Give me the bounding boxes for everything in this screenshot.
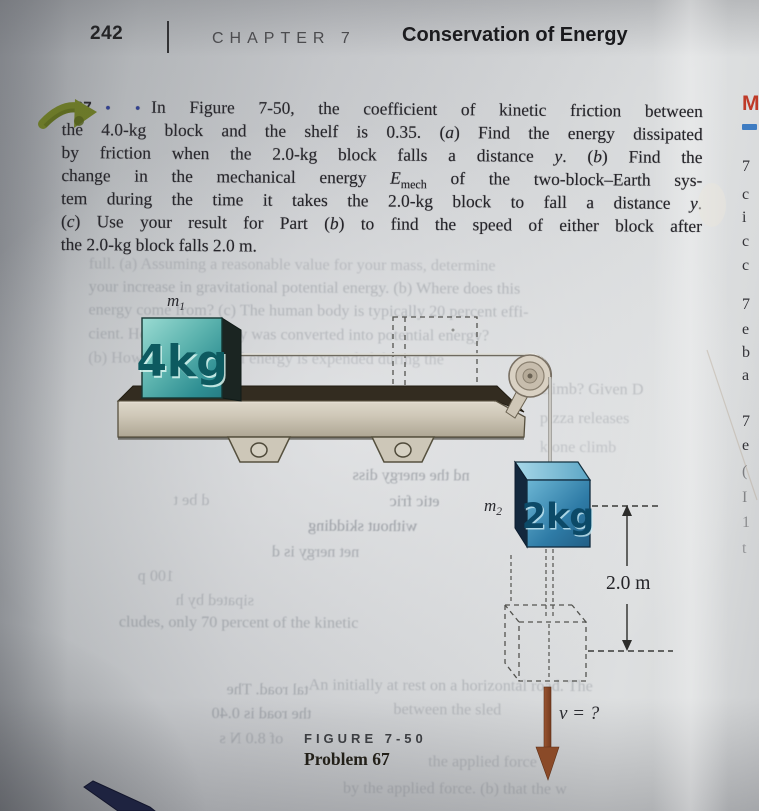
- block-4kg-label: 4kg: [136, 336, 227, 387]
- right-edge-letter: b: [742, 344, 750, 362]
- right-edge-letter: i: [742, 209, 746, 227]
- green-marker-arrow-icon: [43, 99, 97, 128]
- distance-dimension: 2.0 m: [588, 505, 673, 651]
- right-edge-heading-underline: [742, 124, 757, 130]
- fall-guide-dashes: [511, 549, 553, 678]
- right-edge-letter: 7: [742, 296, 750, 314]
- string-horizontal: [241, 354, 551, 377]
- distance-label: 2.0 m: [606, 573, 650, 594]
- figure-7-50-diagram: 4kg 4kg m1 2kg 2kg m2: [0, 0, 759, 811]
- figure-problem-caption: Problem 67: [304, 749, 390, 770]
- ghost-block-start-position: [393, 317, 477, 388]
- right-edge-letter: 1: [742, 514, 750, 532]
- right-edge-letter: t: [742, 540, 746, 558]
- velocity-label: v = ?: [559, 703, 600, 724]
- mass1-label: m1: [167, 291, 185, 313]
- pulley: [506, 355, 551, 418]
- block-2kg-label: 2kg: [522, 497, 595, 537]
- shelf-bracket: [228, 437, 434, 462]
- right-edge-letter: e: [742, 437, 749, 455]
- ghost-block-end-position: [505, 605, 586, 681]
- textbook-page-photo: full. (a) Assuming a reasonable value fo…: [0, 0, 759, 811]
- right-edge-letter: e: [742, 321, 749, 339]
- right-edge-letter: I: [742, 489, 747, 507]
- block-4kg: 4kg 4kg: [136, 318, 241, 401]
- right-edge-letter: 7: [742, 413, 750, 431]
- right-edge-letter: c: [742, 186, 749, 204]
- right-edge-column: M 7cicc7eba7e(I1t: [736, 0, 759, 811]
- right-edge-letter: c: [742, 257, 749, 275]
- right-edge-letter: c: [742, 233, 749, 251]
- right-edge-letter: (: [742, 463, 747, 481]
- mass2-label: m2: [484, 496, 502, 518]
- right-edge-letter: 7: [742, 158, 750, 176]
- figure-caption: FIGURE 7-50: [304, 731, 427, 746]
- velocity-arrow: v = ?: [536, 687, 600, 780]
- pen-tip: [84, 781, 155, 811]
- right-edge-letter: a: [742, 367, 749, 385]
- right-edge-heading-letter: M: [742, 92, 759, 116]
- paper-speck: [452, 329, 455, 332]
- block-2kg: 2kg 2kg: [515, 462, 596, 547]
- paper-stain: [698, 183, 726, 227]
